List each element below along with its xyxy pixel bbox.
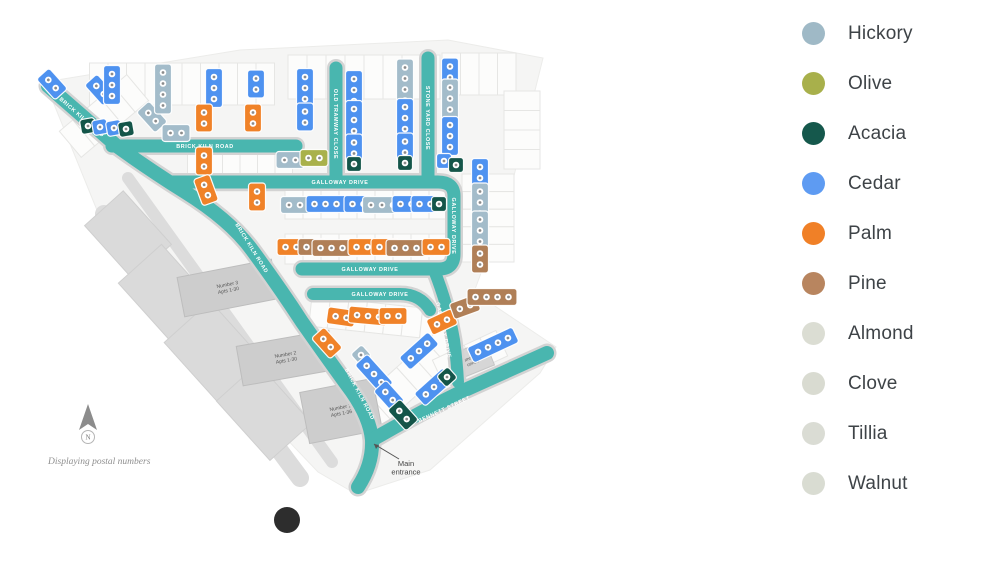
postal-number-mark [180, 132, 183, 135]
legend-label: Olive [848, 73, 892, 95]
postal-number-mark [479, 190, 482, 193]
legend-swatch-almond [802, 322, 825, 345]
postal-number-mark [351, 203, 354, 206]
postal-number-mark [479, 229, 482, 232]
house-shape [422, 239, 450, 256]
postal-number-mark [203, 165, 206, 168]
postal-number-mark [252, 111, 255, 114]
postal-number-mark [319, 247, 322, 250]
house-palm[interactable] [249, 183, 266, 211]
postal-number-mark [213, 87, 216, 90]
house-hickory[interactable] [162, 125, 190, 142]
road-label: GALLOWAY DRIVE [312, 180, 369, 186]
legend-item-olive[interactable]: Olive [802, 72, 914, 95]
postal-number-mark [370, 204, 373, 207]
postal-number-mark [449, 86, 452, 89]
postal-number-mark [381, 204, 384, 207]
postal-number-mark [415, 247, 418, 250]
postal-number-mark [353, 119, 356, 122]
legend-item-pine[interactable]: Pine [802, 272, 914, 295]
postal-number-mark [288, 204, 291, 207]
house-hickory[interactable] [155, 64, 172, 114]
house-palm[interactable] [422, 239, 450, 256]
postal-number-mark [299, 204, 302, 207]
postal-number-mark [111, 95, 114, 98]
plot [182, 63, 201, 105]
postal-number-mark [353, 163, 356, 166]
postal-number-mark [203, 122, 206, 125]
postal-number-mark [255, 88, 258, 91]
house-shape [248, 70, 265, 98]
postal-number-mark [341, 247, 344, 250]
house-shape [472, 245, 489, 273]
postal-number-mark [440, 246, 443, 249]
legend-swatch-cedar [802, 172, 825, 195]
legend-swatch-pine [802, 272, 825, 295]
postal-number-mark [455, 164, 458, 167]
legend-label: Walnut [848, 473, 908, 495]
legend-swatch-olive [802, 72, 825, 95]
plot [479, 53, 498, 95]
north-arrow-icon [79, 404, 97, 430]
house-type-legend: HickoryOliveAcaciaCedarPalmPineAlmondClo… [802, 22, 914, 495]
postal-number-mark [203, 154, 206, 157]
postal-number-mark [474, 296, 477, 299]
postal-number-mark [162, 93, 165, 96]
postal-number-mark [449, 135, 452, 138]
postal-number-mark [162, 71, 165, 74]
postal-number-mark [355, 246, 358, 249]
house-shape [297, 103, 314, 131]
house-pine[interactable] [472, 245, 489, 273]
postal-number-mark [479, 252, 482, 255]
postal-number-mark [496, 296, 499, 299]
legend-swatch-walnut [802, 472, 825, 495]
road-label: GALLOWAY DRIVE [352, 292, 409, 298]
postal-number-mark [203, 111, 206, 114]
house-palm[interactable] [379, 308, 407, 325]
legend-item-hickory[interactable]: Hickory [802, 22, 914, 45]
house-cedar[interactable] [442, 117, 459, 156]
postal-number-mark [507, 296, 510, 299]
legend-swatch-palm [802, 222, 825, 245]
postal-number-mark [318, 157, 321, 160]
legend-label: Palm [848, 223, 892, 245]
house-pine[interactable] [467, 289, 517, 306]
house-palm[interactable] [245, 104, 262, 132]
postal-number-mark [404, 140, 407, 143]
postal-number-mark [404, 128, 407, 131]
postal-number-mark [397, 315, 400, 318]
postal-number-mark [404, 117, 407, 120]
postal-number-mark [404, 77, 407, 80]
postal-number-mark [353, 130, 356, 133]
development-site-map-app: Number 3Apts 1-30Number 2Apts 1-30Number… [0, 0, 998, 561]
postal-number-mark [353, 78, 356, 81]
legend-item-acacia[interactable]: Acacia [802, 122, 914, 145]
postal-number-mark [252, 122, 255, 125]
postal-number-mark [399, 203, 402, 206]
house-cedar[interactable] [104, 66, 121, 105]
legend-swatch-tillia [802, 422, 825, 445]
postal-number-mark [304, 87, 307, 90]
road-label: GALLOWAY DRIVE [450, 198, 456, 255]
legend-label: Pine [848, 273, 887, 295]
house-shape [196, 104, 213, 132]
postal-number-mark [353, 108, 356, 111]
legend-item-walnut[interactable]: Walnut [802, 472, 914, 495]
house-cedar[interactable] [397, 99, 414, 138]
postal-number-mark [479, 240, 482, 243]
house-shape [249, 183, 266, 211]
postal-number-mark [438, 203, 441, 206]
postal-number-mark [449, 124, 452, 127]
legend-label: Cedar [848, 173, 901, 195]
plot [504, 111, 540, 131]
postal-number-mark [353, 141, 356, 144]
map-marker-dot[interactable] [274, 507, 300, 533]
house-acacia[interactable] [449, 158, 464, 173]
plot-strip [504, 91, 540, 169]
postal-number-mark [304, 98, 307, 101]
road-label: GALLOWAY DRIVE [342, 267, 399, 273]
postal-number-mark [449, 146, 452, 149]
postal-number-mark [169, 132, 172, 135]
legend-swatch-hickory [802, 22, 825, 45]
postal-number-mark [404, 247, 407, 250]
legend-label: Tillia [848, 423, 888, 445]
postal-number-mark [330, 247, 333, 250]
house-palm[interactable] [196, 147, 213, 175]
house-shape [196, 147, 213, 175]
house-acacia[interactable] [347, 157, 362, 172]
postal-number-mark [366, 246, 369, 249]
postal-number-mark [256, 201, 259, 204]
postal-number-mark [449, 65, 452, 68]
postal-number-mark [429, 246, 432, 249]
plot [504, 91, 540, 111]
postal-number-mark [404, 151, 407, 154]
legend-swatch-clove [802, 372, 825, 395]
postal-number-mark [304, 121, 307, 124]
road-label: OLD TRAMWAY CLOSE [332, 89, 338, 159]
postal-number-mark [255, 77, 258, 80]
house-shape [245, 104, 262, 132]
plot [461, 53, 480, 95]
postal-numbers-note: Displaying postal numbers [47, 457, 151, 467]
postal-number-mark [313, 203, 316, 206]
postal-number-mark [404, 162, 407, 165]
legend-item-cedar[interactable]: Cedar [802, 172, 914, 195]
postal-number-mark [485, 296, 488, 299]
house-cedar[interactable] [297, 103, 314, 131]
plot [504, 130, 540, 150]
postal-number-mark [378, 246, 381, 249]
legend-label: Clove [848, 373, 898, 395]
plot [504, 150, 540, 170]
plot [364, 55, 383, 99]
postal-number-mark [479, 177, 482, 180]
postal-number-mark [404, 106, 407, 109]
postal-number-mark [162, 82, 165, 85]
legend-label: Almond [848, 323, 914, 345]
postal-number-mark [418, 203, 421, 206]
north-arrow: N [79, 404, 97, 444]
postal-number-mark [404, 88, 407, 91]
house-olive[interactable] [300, 150, 328, 167]
postal-number-mark [479, 263, 482, 266]
postal-number-mark [111, 73, 114, 76]
house-palm[interactable] [196, 104, 213, 132]
postal-number-mark [449, 97, 452, 100]
road-label: STONE YARD CLOSE [424, 86, 430, 150]
house-cedar[interactable] [206, 69, 223, 108]
postal-number-mark [304, 76, 307, 79]
legend-swatch-acacia [802, 122, 825, 145]
postal-number-mark [283, 159, 286, 162]
north-label: N [85, 434, 90, 442]
postal-number-mark [256, 190, 259, 193]
postal-number-mark [479, 201, 482, 204]
house-acacia[interactable] [117, 120, 134, 137]
legend-label: Acacia [848, 123, 906, 145]
postal-number-mark [393, 247, 396, 250]
legend-label: Hickory [848, 23, 913, 45]
postal-number-mark [213, 76, 216, 79]
house-shape [300, 150, 328, 167]
legend-item-clove[interactable]: Clove [802, 372, 914, 395]
legend-item-almond[interactable]: Almond [802, 322, 914, 345]
postal-number-mark [111, 84, 114, 87]
house-shape [162, 125, 190, 142]
house-shape [379, 308, 407, 325]
postal-number-mark [213, 98, 216, 101]
postal-number-mark [404, 66, 407, 69]
legend-item-palm[interactable]: Palm [802, 222, 914, 245]
postal-number-mark [443, 160, 446, 163]
plot [498, 53, 517, 95]
postal-number-mark [304, 110, 307, 113]
house-acacia[interactable] [398, 156, 413, 171]
postal-number-mark [353, 152, 356, 155]
postal-number-mark [294, 159, 297, 162]
postal-number-mark [479, 166, 482, 169]
postal-number-mark [284, 246, 287, 249]
legend-item-tillia[interactable]: Tillia [802, 422, 914, 445]
postal-number-mark [353, 89, 356, 92]
postal-number-mark [335, 203, 338, 206]
postal-number-mark [479, 218, 482, 221]
house-cedar[interactable] [248, 70, 265, 98]
postal-number-mark [305, 246, 308, 249]
postal-number-mark [324, 203, 327, 206]
postal-number-mark [307, 157, 310, 160]
house-acacia[interactable] [432, 197, 447, 212]
postal-number-mark [449, 108, 452, 111]
house-cedar[interactable] [297, 69, 314, 108]
postal-number-mark [386, 315, 389, 318]
postal-number-mark [162, 104, 165, 107]
